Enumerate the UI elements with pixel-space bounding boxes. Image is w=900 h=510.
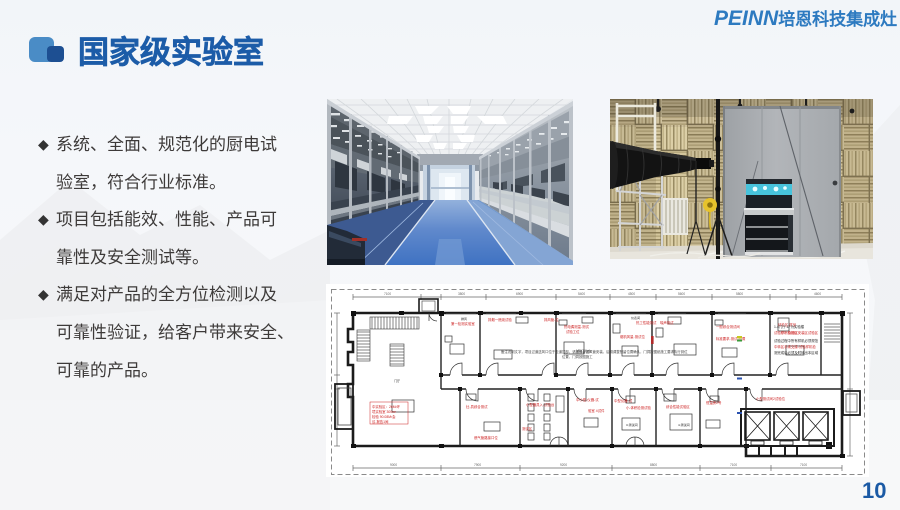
svg-text:5800: 5800 bbox=[736, 292, 743, 296]
svg-text:热工性能测试: 热工性能测试 bbox=[636, 320, 657, 325]
svg-text:5600: 5600 bbox=[678, 292, 685, 296]
svg-text:综合性能试验区: 综合性能试验区 bbox=[666, 404, 690, 409]
svg-text:4-测试间: 4-测试间 bbox=[678, 422, 690, 427]
svg-text:仪表间: 仪表间 bbox=[631, 315, 640, 320]
svg-text:排风: 排风 bbox=[461, 316, 467, 321]
svg-text:试验工位台: 试验工位台 bbox=[576, 348, 591, 353]
svg-text:9200: 9200 bbox=[560, 463, 567, 467]
svg-text:4600: 4600 bbox=[814, 292, 821, 296]
svg-text:燃气管路接口位: 燃气管路接口位 bbox=[474, 435, 498, 440]
svg-text:位置，门洞按图施工: 位置，门洞按图施工 bbox=[562, 354, 593, 359]
svg-text:烟机风量-测试位: 烟机风量-测试位 bbox=[620, 334, 645, 339]
svg-text:小型测试间2试验位: 小型测试间2试验位 bbox=[756, 396, 786, 401]
svg-text:议.报告1间: 议.报告1间 bbox=[372, 419, 389, 424]
svg-text:7100: 7100 bbox=[800, 463, 807, 467]
svg-text:恒温房2号: 恒温房2号 bbox=[706, 400, 722, 405]
svg-text:中小型-仪器-试: 中小型-仪器-试 bbox=[576, 397, 599, 402]
svg-text:中实验区：26M²环: 中实验区：26M²环 bbox=[372, 404, 401, 409]
svg-text:1-4门厅.1F为实验楼: 1-4门厅.1F为实验楼 bbox=[774, 324, 805, 329]
svg-text:6900: 6900 bbox=[516, 292, 523, 296]
svg-text:备注说明文字，项目过道送风口位于走道顶部，请按设计送风管安装: 备注说明文字，项目过道送风口位于走道顶部，请按设计送风管安装，后期调整预留位置确… bbox=[501, 349, 688, 354]
svg-text:7100: 7100 bbox=[384, 292, 391, 296]
svg-text:测试区: 测试区 bbox=[522, 426, 533, 431]
svg-text:4500: 4500 bbox=[628, 292, 635, 296]
svg-text:测完成后必须及时转出本区域: 测完成后必须及时转出本区域 bbox=[774, 350, 819, 355]
svg-text:试验工位: 试验工位 bbox=[566, 329, 580, 334]
svg-text:一般综合测试间: 一般综合测试间 bbox=[716, 324, 740, 329]
svg-text:7900: 7900 bbox=[474, 463, 481, 467]
svg-text:8800: 8800 bbox=[650, 463, 657, 467]
svg-text:小型器具入-试验台: 小型器具入-试验台 bbox=[526, 402, 555, 407]
svg-text:5400: 5400 bbox=[578, 292, 585, 296]
svg-text:小-体积检测试验: 小-体积检测试验 bbox=[626, 405, 651, 410]
svg-text:门厅: 门厅 bbox=[394, 378, 400, 383]
svg-text:试验样机检测区安装区试验区: 试验样机检测区安装区试验区 bbox=[774, 330, 819, 335]
svg-text:3-测试间: 3-测试间 bbox=[626, 422, 638, 427]
svg-text:3800: 3800 bbox=[458, 292, 465, 296]
svg-text:7100: 7100 bbox=[730, 463, 737, 467]
svg-text:第一检测实验室: 第一检测实验室 bbox=[451, 321, 475, 326]
svg-text:噪声测试: 噪声测试 bbox=[660, 320, 674, 325]
svg-text:热电偶测温-测试: 热电偶测温-测试 bbox=[564, 324, 589, 329]
svg-text:验室 4试件: 验室 4试件 bbox=[588, 408, 605, 413]
svg-text:灶-具综合测试: 灶-具综合测试 bbox=[466, 404, 488, 409]
svg-text:试验过程中所有样机必须规范: 试验过程中所有样机必须规范 bbox=[774, 338, 819, 343]
svg-text:境实验室 300m²: 境实验室 300m² bbox=[372, 409, 397, 414]
svg-text:排烟一燃烧试验: 排烟一燃烧试验 bbox=[488, 317, 512, 322]
svg-text:9000: 9000 bbox=[390, 463, 397, 467]
svg-text:检验 90.08M²会: 检验 90.08M²会 bbox=[372, 414, 396, 419]
svg-text:中转区手续交接-试验样机检: 中转区手续交接-试验样机检 bbox=[774, 344, 816, 349]
svg-text:排风管-位: 排风管-位 bbox=[544, 317, 559, 322]
svg-text:中型仪器-试: 中型仪器-试 bbox=[614, 398, 633, 403]
